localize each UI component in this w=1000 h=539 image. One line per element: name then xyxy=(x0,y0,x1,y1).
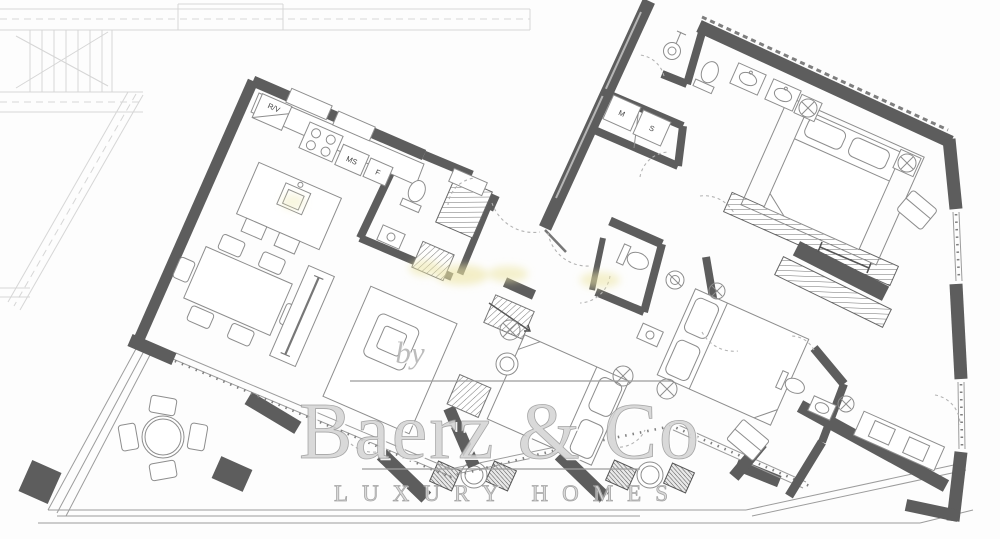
terrace-dining-set xyxy=(118,395,208,481)
floor-plan-image: R/V MS F xyxy=(0,0,1000,539)
watermark-by: by xyxy=(395,335,425,370)
watermark-brand: Baerz & Co xyxy=(299,388,701,476)
sink xyxy=(765,79,801,111)
sink xyxy=(730,63,766,95)
bench xyxy=(727,419,770,461)
window-pier xyxy=(245,392,302,434)
toilet xyxy=(616,244,652,274)
pouf xyxy=(496,353,518,375)
kitchen-island xyxy=(231,162,341,262)
bedroom-chair xyxy=(896,190,937,230)
sink xyxy=(637,323,664,347)
terrace-pillar xyxy=(212,456,253,492)
floor-plan-canvas: R/V MS F xyxy=(0,0,1000,539)
toilet xyxy=(693,58,723,94)
adjacent-stairs xyxy=(16,30,112,92)
toilet xyxy=(400,177,430,212)
watermark-tagline: LUXURY HOMES xyxy=(334,481,682,506)
shower-head xyxy=(664,43,681,60)
shower-head xyxy=(666,271,684,289)
